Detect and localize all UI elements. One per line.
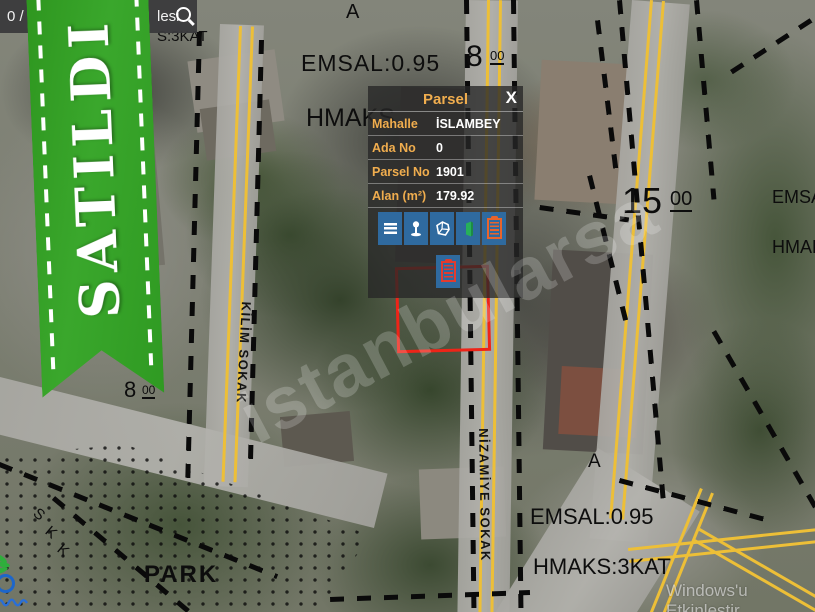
map-label: 00 [670,189,692,212]
map-label: 8 [466,42,483,72]
map-label: A [346,2,359,22]
field-row-alan: Alan (m²) 179.92 [368,184,523,208]
field-value: İSLAMBEY [436,117,523,131]
sold-ribbon-label: SATILDI [56,15,132,320]
parcel-3d-button[interactable] [430,212,454,245]
field-row-mahalle: Mahalle İSLAMBEY [368,112,523,136]
park-label: PARK [144,563,218,587]
map-label: 00 [490,49,504,65]
building-orange-icon [487,218,502,239]
field-value: 179.92 [436,189,523,203]
search-icon[interactable] [176,7,191,22]
field-label: Ada No [372,141,436,155]
door-icon [461,220,475,238]
field-value: 0 [436,141,523,155]
map-label: EMSAL [772,188,815,206]
map-label: 00 [142,384,155,399]
popup-title: Parsel [368,91,523,108]
building-detail-button[interactable] [436,255,460,288]
door-button[interactable] [456,212,480,245]
menu-icon [384,223,397,234]
search-text-fragment: 0 / [7,8,24,25]
map-label: EMSAL:0.95 [301,52,440,75]
ribbon-dashed-edge [134,0,153,365]
field-row-ada-no: Ada No 0 [368,136,523,160]
windows-activation-watermark: Windows'u Etkinleştir [666,581,815,612]
map-label: HMAKS [772,238,815,256]
ribbon-dashed-edge [36,0,55,369]
parcel-3d-icon [434,220,451,237]
logo-script [0,594,32,608]
sold-ribbon: SATILDI [26,0,164,398]
map-label: A [588,452,601,471]
map-label: HMAKS:3KAT [533,556,671,578]
street-label-nizamiye-sokak: NİZAMİYE SOKAK [476,428,493,562]
building-report-button[interactable] [482,212,506,245]
ring-icon [0,574,15,593]
field-label: Mahalle [372,117,436,131]
pin-icon [408,220,424,237]
field-row-parsel-no: Parsel No 1901 [368,160,523,184]
map-label: 15 [622,183,662,219]
agency-logo [0,548,40,612]
parcel-popup: Parsel X Mahalle İSLAMBEY Ada No 0 Parse… [368,86,523,298]
parcel-map-viewer: A EMSAL:0.95 HMAKS S:3KAT 8 00 15 00 EMS… [0,0,815,612]
field-label: Alan (m²) [372,189,436,203]
popup-toolbar [378,212,506,245]
field-label: Parsel No [372,165,436,179]
map-label: 8 [124,379,136,401]
streetview-pin-button[interactable] [404,212,428,245]
building-red-icon [441,261,456,282]
field-value: 1901 [436,165,523,179]
map-label: EMSAL:0.95 [530,506,654,528]
close-icon[interactable]: X [506,89,517,106]
menu-button[interactable] [378,212,402,245]
